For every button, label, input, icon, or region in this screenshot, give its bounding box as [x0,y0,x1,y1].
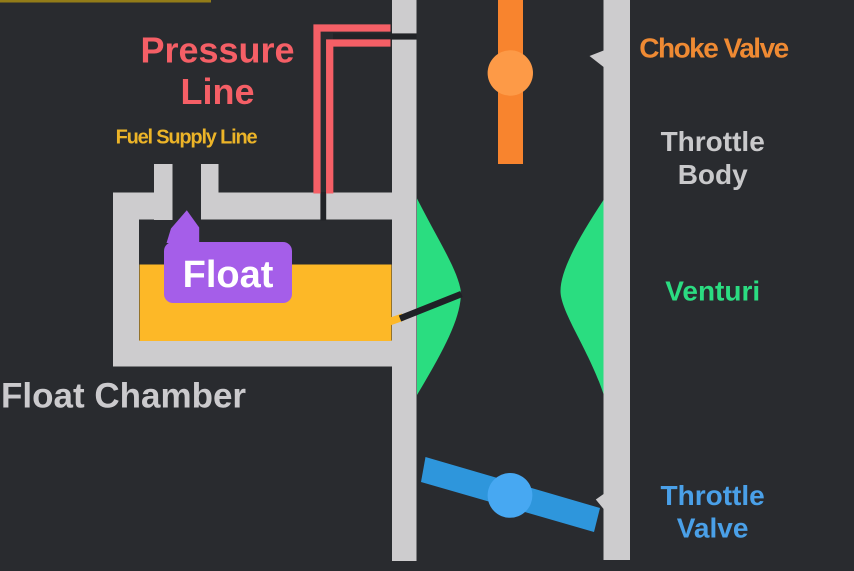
svg-text:Body: Body [678,159,748,190]
svg-text:Venturi: Venturi [665,276,760,307]
svg-text:Float Chamber: Float Chamber [1,377,246,416]
svg-text:Float: Float [183,254,274,296]
svg-text:Pressure: Pressure [140,30,294,71]
svg-text:Valve: Valve [677,513,749,544]
svg-text:Choke Valve: Choke Valve [639,33,788,64]
svg-text:Throttle: Throttle [661,126,765,157]
svg-text:Line: Line [180,71,254,112]
svg-text:Fuel Supply Line: Fuel Supply Line [116,127,258,149]
svg-text:Throttle: Throttle [660,480,764,511]
